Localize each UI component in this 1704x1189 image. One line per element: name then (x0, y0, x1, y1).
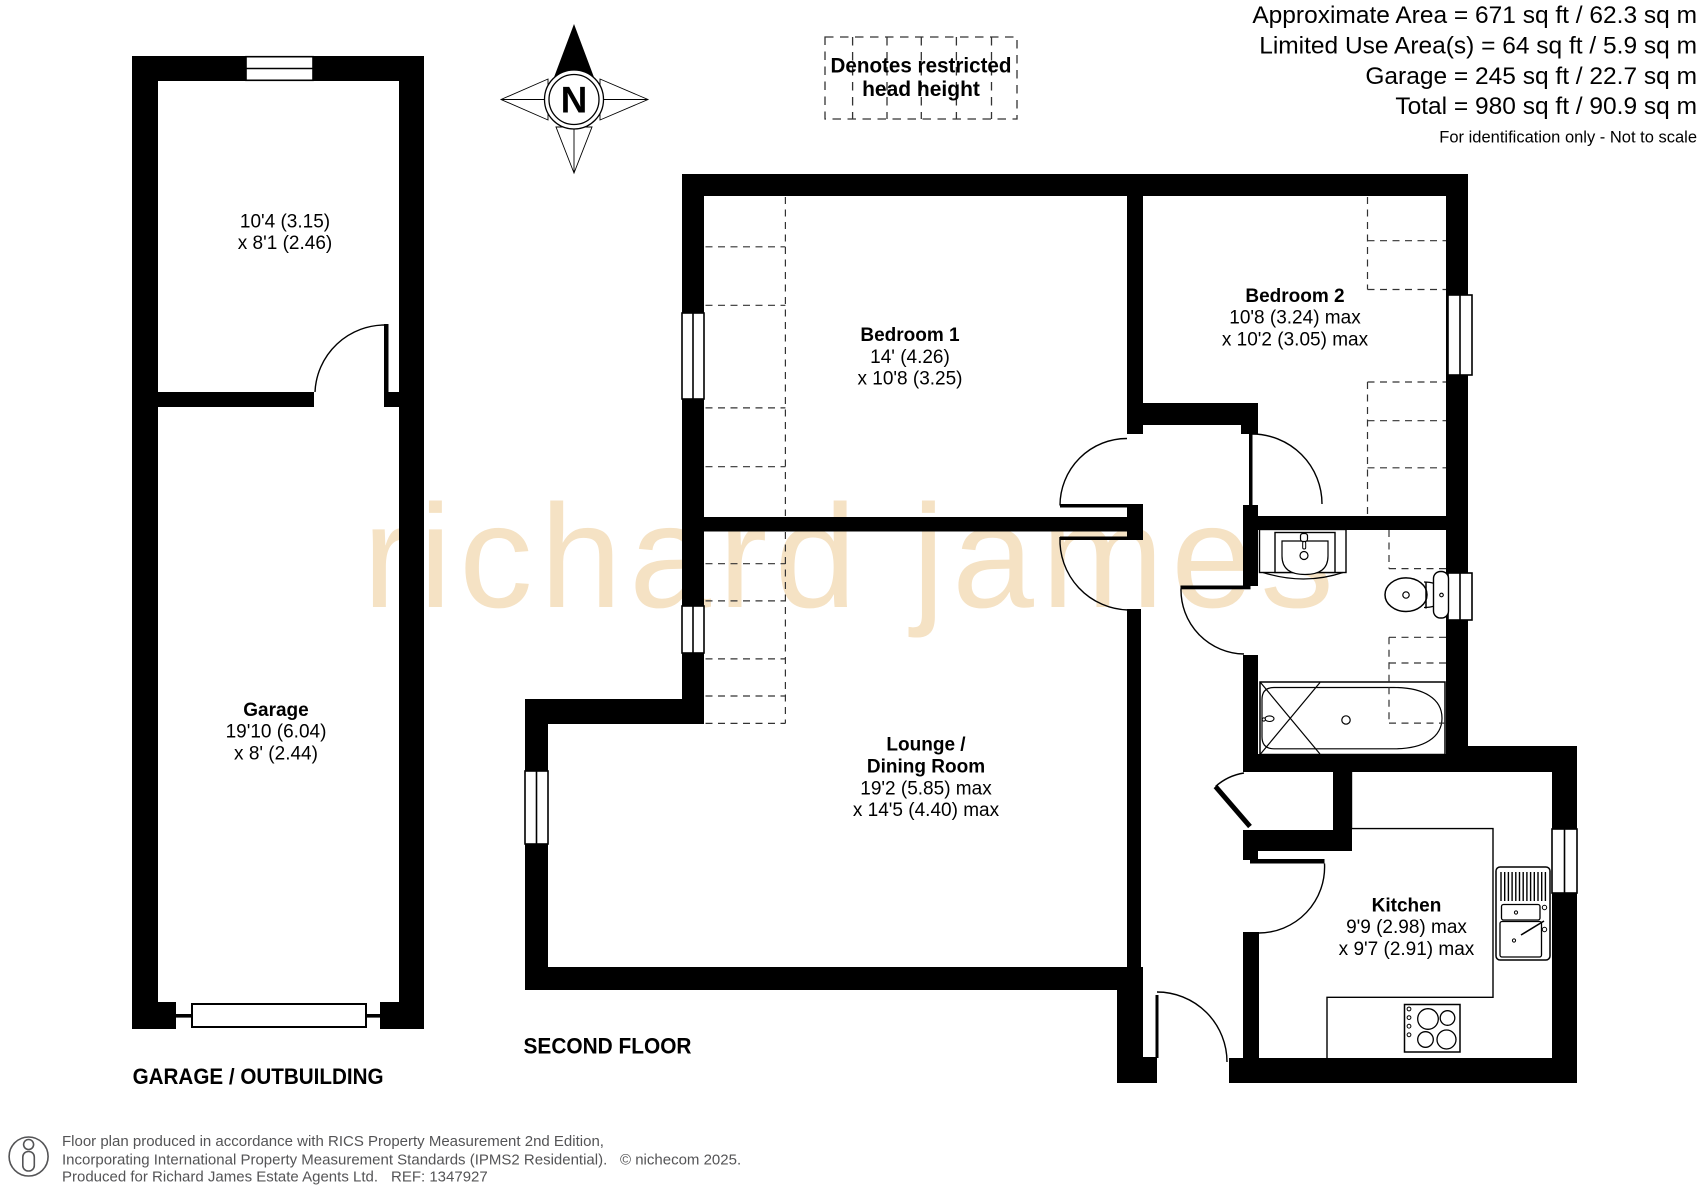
svg-text:Lounge /: Lounge / (886, 735, 966, 756)
svg-text:19'10 (6.04): 19'10 (6.04) (226, 722, 327, 743)
svg-text:Floor plan produced in accorda: Floor plan produced in accordance with R… (62, 1133, 604, 1150)
svg-text:x 14'5 (4.40) max: x 14'5 (4.40) max (853, 800, 1000, 821)
svg-text:10'4 (3.15): 10'4 (3.15) (240, 211, 330, 232)
svg-text:19'2 (5.85) max: 19'2 (5.85) max (860, 778, 992, 799)
svg-text:9'9 (2.98) max: 9'9 (2.98) max (1346, 917, 1467, 938)
svg-text:richard james: richard james (363, 475, 1342, 639)
svg-text:x 9'7 (2.91) max: x 9'7 (2.91) max (1339, 939, 1475, 960)
svg-text:Bedroom 1: Bedroom 1 (860, 325, 960, 346)
svg-text:REF: 1347927: REF: 1347927 (391, 1168, 488, 1185)
svg-text:Limited Use Area(s) = 64 sq ft: Limited Use Area(s) = 64 sq ft / 5.9 sq … (1259, 32, 1697, 59)
svg-text:Incorporating International Pr: Incorporating International Property Mea… (62, 1151, 607, 1168)
svg-text:x 8' (2.44): x 8' (2.44) (234, 743, 318, 764)
svg-text:Total = 980 sq ft / 90.9 sq m: Total = 980 sq ft / 90.9 sq m (1395, 93, 1697, 120)
svg-text:Denotes restricted: Denotes restricted (831, 55, 1012, 78)
svg-text:head height: head height (862, 78, 980, 101)
svg-text:x 10'8 (3.25): x 10'8 (3.25) (857, 369, 962, 390)
svg-text:For identification only - Not: For identification only - Not to scale (1439, 129, 1697, 147)
svg-text:Bedroom 2: Bedroom 2 (1245, 286, 1344, 307)
svg-text:GARAGE / OUTBUILDING: GARAGE / OUTBUILDING (133, 1064, 384, 1089)
svg-text:Garage: Garage (243, 700, 308, 721)
svg-text:SECOND FLOOR: SECOND FLOOR (524, 1033, 692, 1058)
svg-text:x 10'2 (3.05) max: x 10'2 (3.05) max (1222, 329, 1369, 350)
svg-text:Kitchen: Kitchen (1372, 895, 1442, 916)
svg-text:Produced for Richard James Est: Produced for Richard James Estate Agents… (62, 1168, 378, 1185)
svg-text:14' (4.26): 14' (4.26) (870, 347, 950, 368)
svg-text:x 8'1 (2.46): x 8'1 (2.46) (238, 233, 332, 254)
svg-text:Dining Room: Dining Room (867, 757, 985, 778)
svg-text:Approximate Area = 671 sq ft /: Approximate Area = 671 sq ft / 62.3 sq m (1252, 2, 1697, 29)
svg-text:© nichecom 2025.: © nichecom 2025. (620, 1151, 741, 1168)
svg-text:N: N (561, 80, 588, 121)
svg-text:Garage = 245 sq ft / 22.7 sq m: Garage = 245 sq ft / 22.7 sq m (1365, 63, 1697, 90)
svg-text:10'8 (3.24) max: 10'8 (3.24) max (1229, 308, 1361, 329)
